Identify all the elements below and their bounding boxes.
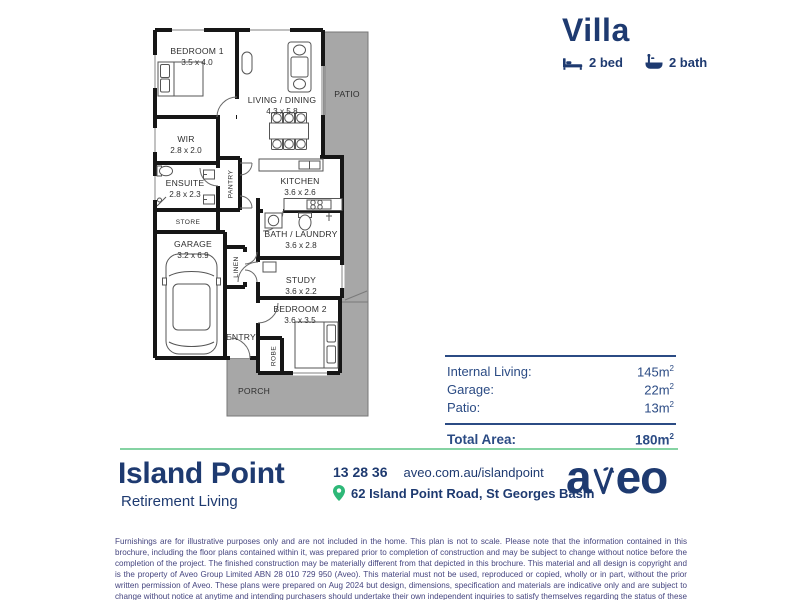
community-tagline: Retirement Living	[121, 493, 284, 510]
phone-number: 13 28 36	[333, 464, 388, 480]
area-value: 145m2	[637, 364, 674, 379]
dining-set	[270, 113, 309, 150]
room-dims-study: 3.6 x 2.2	[285, 287, 317, 296]
bed1-furniture	[158, 62, 203, 96]
area-row-internal-living: Internal Living: 145m2	[445, 362, 676, 380]
room-label-entry: ENTRY	[226, 332, 256, 342]
aveo-logo-a: a	[566, 456, 591, 498]
bed-icon	[563, 55, 583, 70]
area-label: Internal Living:	[447, 364, 532, 379]
page-title: Villa	[562, 12, 630, 49]
room-dims-garage: 3.2 x 6.9	[177, 251, 209, 260]
room-dims-bedroom2: 3.6 x 3.5	[284, 316, 316, 325]
website-url: aveo.com.au/islandpoint	[404, 465, 544, 480]
room-label-living: LIVING / DINING	[248, 95, 317, 105]
floor-plan: BEDROOM 1 3.5 x 4.0 LIVING / DINING 4.3 …	[105, 8, 405, 440]
area-value: 13m2	[644, 400, 674, 415]
room-dims-ensuite: 2.8 x 2.3	[169, 190, 201, 199]
room-label-kitchen: KITCHEN	[280, 176, 319, 186]
area-row-garage: Garage: 22m2	[445, 380, 676, 398]
area-rows: Internal Living: 145m2 Garage: 22m2 Pati…	[445, 355, 676, 422]
community-brand: Island Point Retirement Living	[118, 459, 284, 510]
area-label: Patio:	[447, 400, 480, 415]
room-label-bedroom1: BEDROOM 1	[170, 46, 223, 56]
room-label-study: STUDY	[286, 275, 316, 285]
room-label-pantry: PANTRY	[228, 170, 235, 199]
room-dims-bedroom1: 3.5 x 4.0	[181, 58, 213, 67]
room-label-bath-laundry: BATH / LAUNDRY	[264, 229, 337, 239]
room-label-porch: PORCH	[238, 386, 270, 396]
bath-count-label: 2 bath	[669, 55, 707, 70]
hall-table	[242, 52, 252, 74]
sofa	[288, 42, 311, 92]
bed-bath-summary: 2 bed 2 bath	[563, 54, 707, 70]
room-label-wir: WIR	[177, 134, 194, 144]
area-summary-table: Internal Living: 145m2 Garage: 22m2 Pati…	[445, 355, 676, 447]
community-name: Island Point	[118, 459, 284, 489]
aveo-leaf-v-icon	[592, 465, 615, 497]
area-label: Garage:	[447, 382, 494, 397]
room-dims-living: 4.3 x 5.8	[266, 107, 298, 116]
room-label-robe: ROBE	[271, 346, 278, 366]
study-cabinet	[263, 262, 276, 272]
bath-count: 2 bath	[645, 54, 707, 70]
area-row-total: Total Area: 180m2	[445, 423, 676, 448]
aveo-logo: a eo	[566, 456, 667, 498]
address: 62 Island Point Road, St Georges Basin	[351, 486, 594, 501]
area-row-patio: Patio: 13m2	[445, 399, 676, 417]
bed-count-label: 2 bed	[589, 55, 623, 70]
room-label-linen: LINEN	[233, 256, 240, 277]
brochure-page: Villa 2 bed 2 bath	[0, 0, 800, 600]
aveo-logo-eo: eo	[616, 456, 668, 498]
total-area-value: 180m2	[635, 432, 674, 448]
bed2-furniture	[295, 322, 338, 368]
green-divider	[120, 448, 678, 450]
disclaimer-text: Furnishings are for illustrative purpose…	[115, 536, 687, 600]
room-dims-kitchen: 3.6 x 2.6	[284, 188, 316, 197]
contact-line2: 62 Island Point Road, St Georges Basin	[333, 485, 594, 501]
map-pin-icon	[333, 485, 345, 501]
room-label-ensuite: ENSUITE	[166, 178, 205, 188]
room-label-store: STORE	[176, 219, 201, 226]
area-value: 22m2	[644, 382, 674, 397]
room-label-patio: PATIO	[334, 89, 360, 99]
room-label-garage: GARAGE	[174, 239, 212, 249]
room-dims-wir: 2.8 x 2.0	[170, 146, 202, 155]
total-area-label: Total Area:	[447, 432, 516, 448]
car	[163, 254, 221, 354]
bath-icon	[645, 54, 663, 70]
contact-line1: 13 28 36 aveo.com.au/islandpoint	[333, 464, 594, 480]
room-label-bedroom2: BEDROOM 2	[273, 304, 326, 314]
bed-count: 2 bed	[563, 55, 623, 70]
room-dims-bath-laundry: 3.6 x 2.8	[285, 241, 317, 250]
contact-block: 13 28 36 aveo.com.au/islandpoint 62 Isla…	[333, 464, 594, 501]
